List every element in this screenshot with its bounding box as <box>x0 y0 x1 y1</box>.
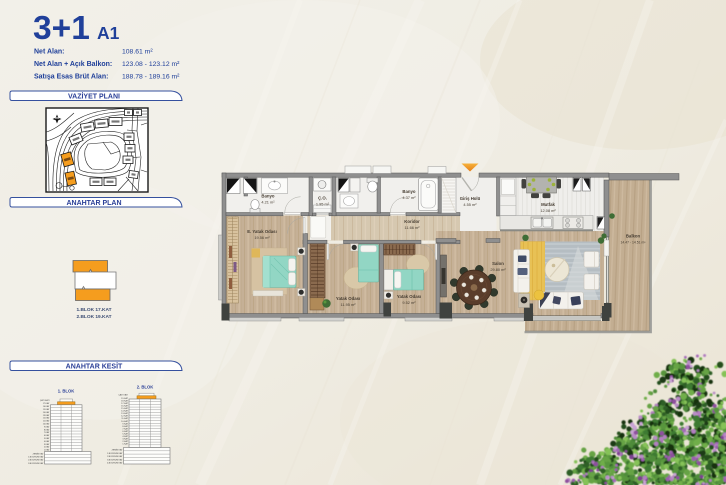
svg-text:1.BODRUM KAT: 1.BODRUM KAT <box>28 456 44 459</box>
svg-text:7.KAT: 7.KAT <box>44 431 50 434</box>
svg-text:9.52 m²: 9.52 m² <box>402 300 416 305</box>
svg-text:8.KAT: 8.KAT <box>44 428 50 431</box>
svg-text:188.78 - 189.16 m²: 188.78 - 189.16 m² <box>122 74 180 81</box>
svg-text:2.BLOK 19.KAT: 2.BLOK 19.KAT <box>76 314 111 320</box>
svg-text:11.KAT: 11.KAT <box>121 417 128 420</box>
svg-text:Koridor: Koridor <box>404 219 420 224</box>
svg-text:Net Alan + Açık Balkon:: Net Alan + Açık Balkon: <box>34 61 112 68</box>
svg-text:29.80 m²: 29.80 m² <box>490 267 506 272</box>
svg-text:15.KAT: 15.KAT <box>43 408 51 411</box>
svg-text:11.66 m²: 11.66 m² <box>404 225 420 230</box>
svg-text:1.KAT: 1.KAT <box>44 449 50 452</box>
svg-text:2.KAT: 2.KAT <box>44 446 50 449</box>
svg-text:Yatak Odası: Yatak Odası <box>397 294 421 299</box>
svg-text:VAZİYET PLANI: VAZİYET PLANI <box>68 93 120 101</box>
svg-text:2.BODRUM KAT: 2.BODRUM KAT <box>107 455 123 458</box>
svg-text:12.08 m²: 12.08 m² <box>540 208 556 213</box>
svg-text:1.KAT: 1.KAT <box>122 443 128 446</box>
svg-text:14.47 - 14.51 m²: 14.47 - 14.51 m² <box>621 241 647 245</box>
svg-text:4.55 m²: 4.55 m² <box>463 202 477 207</box>
svg-text:Salon: Salon <box>492 261 504 266</box>
svg-text:2. BLOK: 2. BLOK <box>137 385 154 390</box>
svg-text:123.08 - 123.12 m²: 123.08 - 123.12 m² <box>122 61 180 68</box>
svg-text:13.KAT: 13.KAT <box>121 412 129 415</box>
svg-text:1.BLOK 17.KAT: 1.BLOK 17.KAT <box>76 307 111 313</box>
svg-text:4.37 m²: 4.37 m² <box>402 195 416 200</box>
svg-text:108.61 m²: 108.61 m² <box>122 49 153 56</box>
svg-text:1.BODRUM KAT: 1.BODRUM KAT <box>107 452 123 455</box>
svg-text:7.KAT: 7.KAT <box>122 427 128 430</box>
svg-text:Giriş Holü: Giriş Holü <box>460 196 481 201</box>
svg-text:4.BODRUM KAT: 4.BODRUM KAT <box>107 462 123 465</box>
svg-text:Yatak Odası: Yatak Odası <box>336 296 360 301</box>
svg-text:4.KAT: 4.KAT <box>44 440 50 443</box>
svg-text:4.21 m²: 4.21 m² <box>261 200 275 205</box>
svg-text:17.KAT: 17.KAT <box>121 402 129 405</box>
svg-text:Net Alan:: Net Alan: <box>34 49 64 56</box>
svg-text:E. Yatak Odası: E. Yatak Odası <box>247 229 277 234</box>
svg-text:3.KAT: 3.KAT <box>44 443 50 446</box>
svg-text:12.KAT: 12.KAT <box>43 417 51 420</box>
svg-text:Balkon: Balkon <box>626 234 641 239</box>
svg-text:Satışa Esas Brüt Alan:: Satışa Esas Brüt Alan: <box>34 74 108 81</box>
svg-text:5.KAT: 5.KAT <box>122 433 128 436</box>
svg-text:Ç.O.: Ç.O. <box>318 196 327 201</box>
svg-text:19.56 m²: 19.56 m² <box>254 235 270 240</box>
svg-text:15.KAT: 15.KAT <box>121 407 129 410</box>
svg-text:ÇATI KATI: ÇATI KATI <box>118 393 128 396</box>
svg-text:ZEMİN KAT: ZEMİN KAT <box>33 453 45 456</box>
svg-text:5.KAT: 5.KAT <box>44 437 50 440</box>
svg-text:19.KAT: 19.KAT <box>121 397 129 400</box>
svg-text:11.KAT: 11.KAT <box>43 420 50 423</box>
svg-text:2.BODRUM KAT: 2.BODRUM KAT <box>28 459 44 462</box>
svg-text:Banyo: Banyo <box>261 194 275 199</box>
svg-text:3+1: 3+1 <box>33 10 90 47</box>
svg-text:ÇATI KATI: ÇATI KATI <box>40 399 50 402</box>
svg-text:Mutfak: Mutfak <box>541 202 555 207</box>
svg-text:17.KAT: 17.KAT <box>43 402 51 405</box>
svg-text:ZEMİN KAT: ZEMİN KAT <box>112 449 124 452</box>
svg-text:1. BLOK: 1. BLOK <box>58 389 75 394</box>
svg-text:ANAHTAR KESİT: ANAHTAR KESİT <box>66 363 123 371</box>
svg-text:10.KAT: 10.KAT <box>43 423 51 426</box>
svg-text:6.KAT: 6.KAT <box>44 434 50 437</box>
svg-text:9.KAT: 9.KAT <box>44 425 50 428</box>
svg-text:3.KAT: 3.KAT <box>122 438 128 441</box>
svg-text:A1: A1 <box>97 23 120 43</box>
svg-text:1.95 m²: 1.95 m² <box>316 202 330 207</box>
svg-text:Banyo: Banyo <box>402 189 416 194</box>
svg-text:3.BODRUM KAT: 3.BODRUM KAT <box>107 458 123 461</box>
svg-text:13.KAT: 13.KAT <box>43 414 51 417</box>
svg-text:11.95 m²: 11.95 m² <box>340 302 356 307</box>
svg-text:3.BODRUM KAT: 3.BODRUM KAT <box>28 462 44 465</box>
svg-text:16.KAT: 16.KAT <box>43 405 51 408</box>
svg-text:14.KAT: 14.KAT <box>43 411 51 414</box>
svg-text:ANAHTAR PLAN: ANAHTAR PLAN <box>66 200 121 207</box>
svg-text:9.KAT: 9.KAT <box>122 422 128 425</box>
